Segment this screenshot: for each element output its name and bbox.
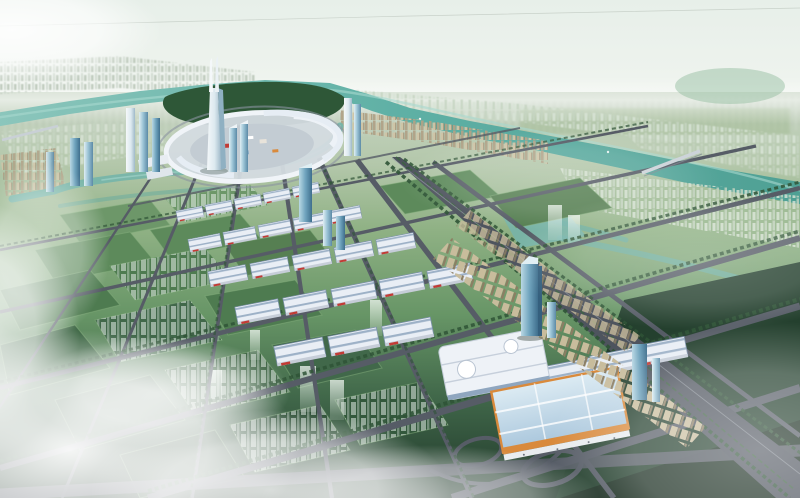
aerial-city-rendering xyxy=(0,0,800,498)
tower-body xyxy=(323,210,332,246)
tower-body xyxy=(354,104,361,156)
tower-body xyxy=(547,302,556,338)
tower-body xyxy=(84,142,93,186)
tower-body xyxy=(229,128,237,172)
ghost-tower xyxy=(330,380,344,420)
pavilion xyxy=(259,139,266,143)
distant-lake xyxy=(675,68,785,104)
rendering-canvas xyxy=(0,0,800,498)
tower-body xyxy=(240,124,248,172)
tower-body xyxy=(126,108,135,172)
tower-body xyxy=(344,98,352,156)
tower-body xyxy=(152,118,160,172)
tower-body xyxy=(336,216,345,250)
tower-body xyxy=(139,112,148,172)
tower-body xyxy=(299,168,312,222)
pavilion xyxy=(272,149,278,152)
pavilion xyxy=(247,136,253,139)
